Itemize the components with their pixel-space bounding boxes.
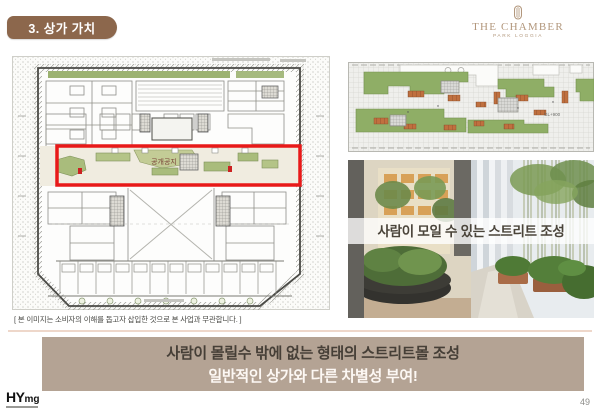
company-logo-main: HY	[6, 389, 24, 405]
building-outline	[38, 68, 300, 306]
street-photo: 사람이 모일 수 있는 스트리트 조성	[348, 160, 594, 318]
brand-logo: THE CHAMBER PARK LOGGIA	[458, 5, 578, 39]
banner-line1: 사람이 몰릴수 밖에 없는 형태의 스트리트몰 조성	[166, 342, 459, 363]
brand-subtitle: PARK LOGGIA	[458, 34, 578, 39]
floor-plan-image: 공개공지	[12, 56, 330, 310]
plan-street-zone: 공개공지	[40, 146, 300, 186]
section-badge: 3. 상가 가치	[7, 16, 117, 39]
page-number: 49	[580, 397, 590, 407]
chamber-emblem-icon	[512, 5, 524, 20]
company-logo-sub: mg	[24, 394, 39, 405]
landscape-plan-image: GL+900	[348, 62, 594, 152]
company-logo-tagline	[6, 406, 38, 408]
ground-level-label: GL+900	[544, 112, 561, 117]
banner-line2: 일반적인 상가와 다른 차별성 부여!	[208, 365, 417, 386]
presentation-slide: 3. 상가 가치 THE CHAMBER PARK LOGGIA	[0, 0, 600, 415]
section-badge-label: 3. 상가 가치	[28, 18, 95, 37]
brand-title: THE CHAMBER	[458, 21, 578, 33]
photo-overlay-text: 사람이 모일 수 있는 스트리트 조성	[378, 223, 565, 239]
divider-line	[8, 330, 592, 332]
public-open-space-label: 공개공지	[151, 157, 177, 166]
key-message-banner: 사람이 몰릴수 밖에 없는 형태의 스트리트몰 조성 일반적인 상가와 다른 차…	[42, 337, 584, 391]
plan-top-green-strip	[48, 71, 284, 78]
disclaimer-caption: [ 본 이미지는 소비자의 이해를 돕고자 삽입한 것으로 본 사업과 무관합니…	[14, 314, 241, 325]
company-logo: HYmg	[6, 392, 39, 408]
photo-overlay-band: 사람이 모일 수 있는 스트리트 조성	[348, 218, 594, 244]
